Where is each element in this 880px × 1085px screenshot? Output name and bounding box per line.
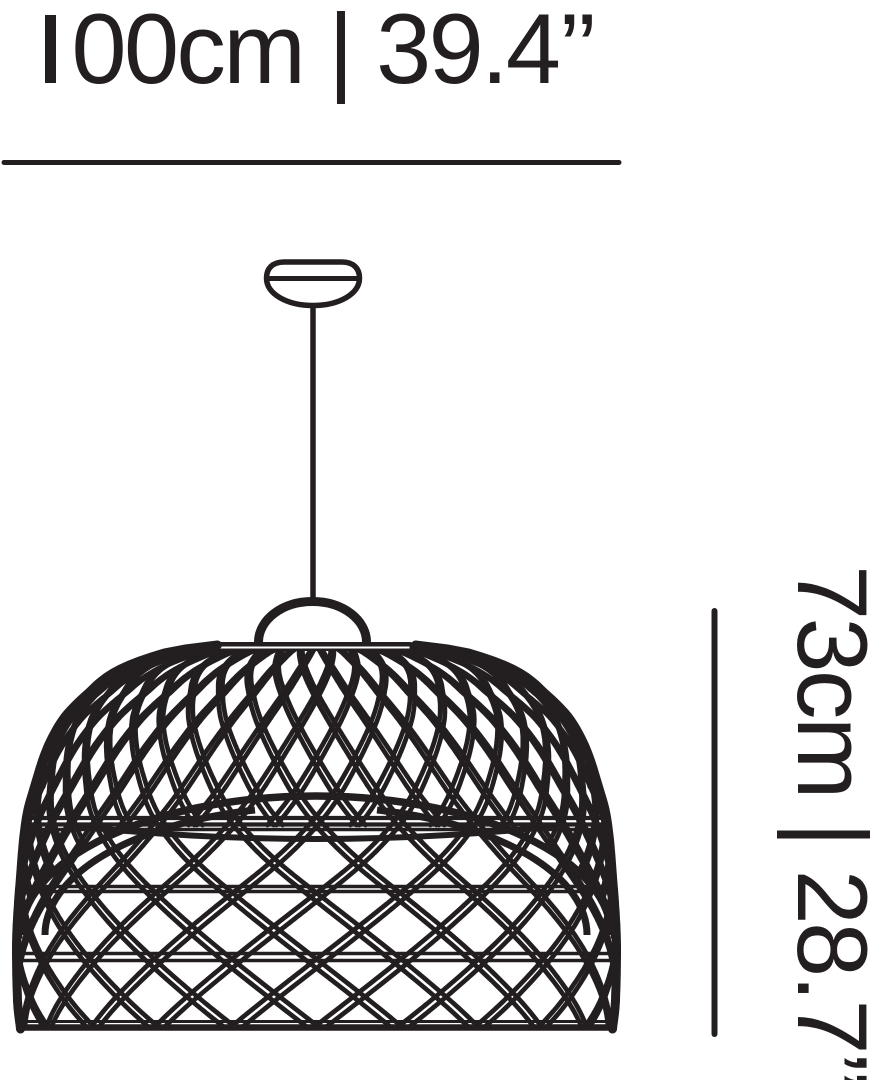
svg-text:00cm | 39.4’’: 00cm | 39.4’’ bbox=[72, 0, 596, 104]
svg-text:73cm | 28.7’’: 73cm | 28.7’’ bbox=[777, 565, 880, 1080]
